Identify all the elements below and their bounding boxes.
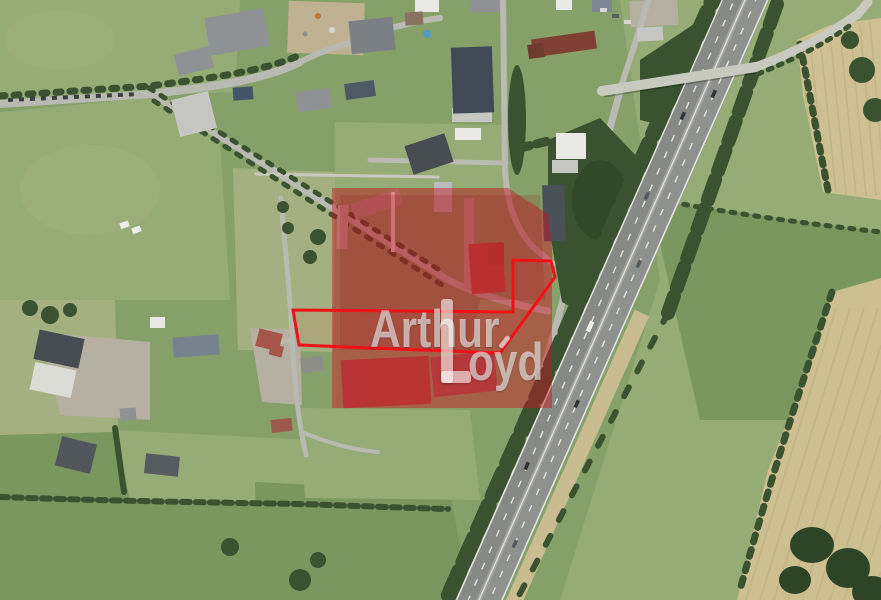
- watermark-letter-L-foot: [441, 371, 471, 383]
- swimming-pool: [423, 30, 431, 38]
- aerial-map-image: Arthur oyd: [0, 0, 881, 600]
